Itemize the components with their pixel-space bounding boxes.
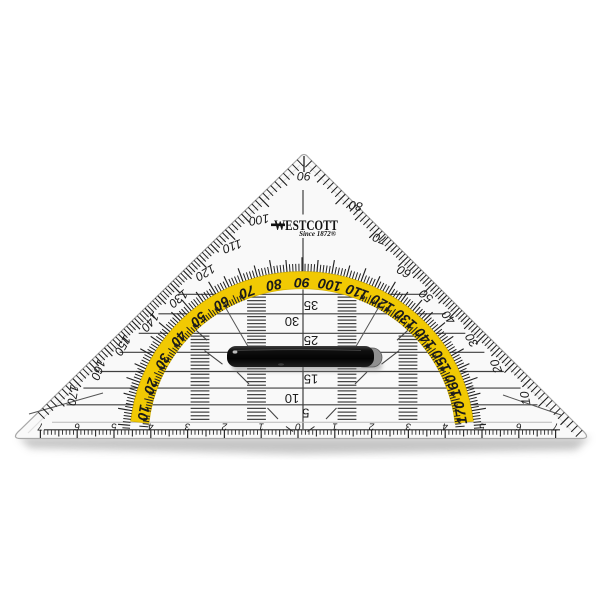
svg-text:7: 7 [552, 421, 558, 432]
svg-text:0: 0 [295, 421, 301, 432]
svg-text:15: 15 [304, 372, 318, 387]
svg-text:1: 1 [258, 421, 264, 432]
svg-text:30: 30 [285, 314, 299, 329]
svg-text:5: 5 [302, 406, 309, 421]
svg-text:6: 6 [516, 421, 522, 432]
svg-text:10: 10 [285, 391, 299, 406]
svg-text:6: 6 [74, 421, 80, 432]
svg-text:90: 90 [294, 274, 310, 290]
svg-text:10: 10 [133, 403, 152, 421]
svg-text:5: 5 [479, 421, 485, 432]
svg-text:7: 7 [37, 421, 43, 432]
svg-text:3: 3 [405, 421, 411, 432]
svg-text:4: 4 [148, 421, 154, 432]
svg-text:2: 2 [221, 421, 228, 432]
svg-text:10: 10 [517, 390, 533, 406]
svg-text:4: 4 [442, 421, 448, 432]
svg-text:2: 2 [368, 421, 375, 432]
svg-text:5: 5 [111, 421, 117, 432]
svg-text:25: 25 [304, 333, 318, 348]
svg-text:80: 80 [265, 275, 283, 294]
svg-text:Since 1872®: Since 1872® [299, 230, 337, 238]
svg-text:3: 3 [184, 421, 190, 432]
svg-text:1: 1 [332, 421, 338, 432]
svg-text:35: 35 [304, 298, 318, 313]
